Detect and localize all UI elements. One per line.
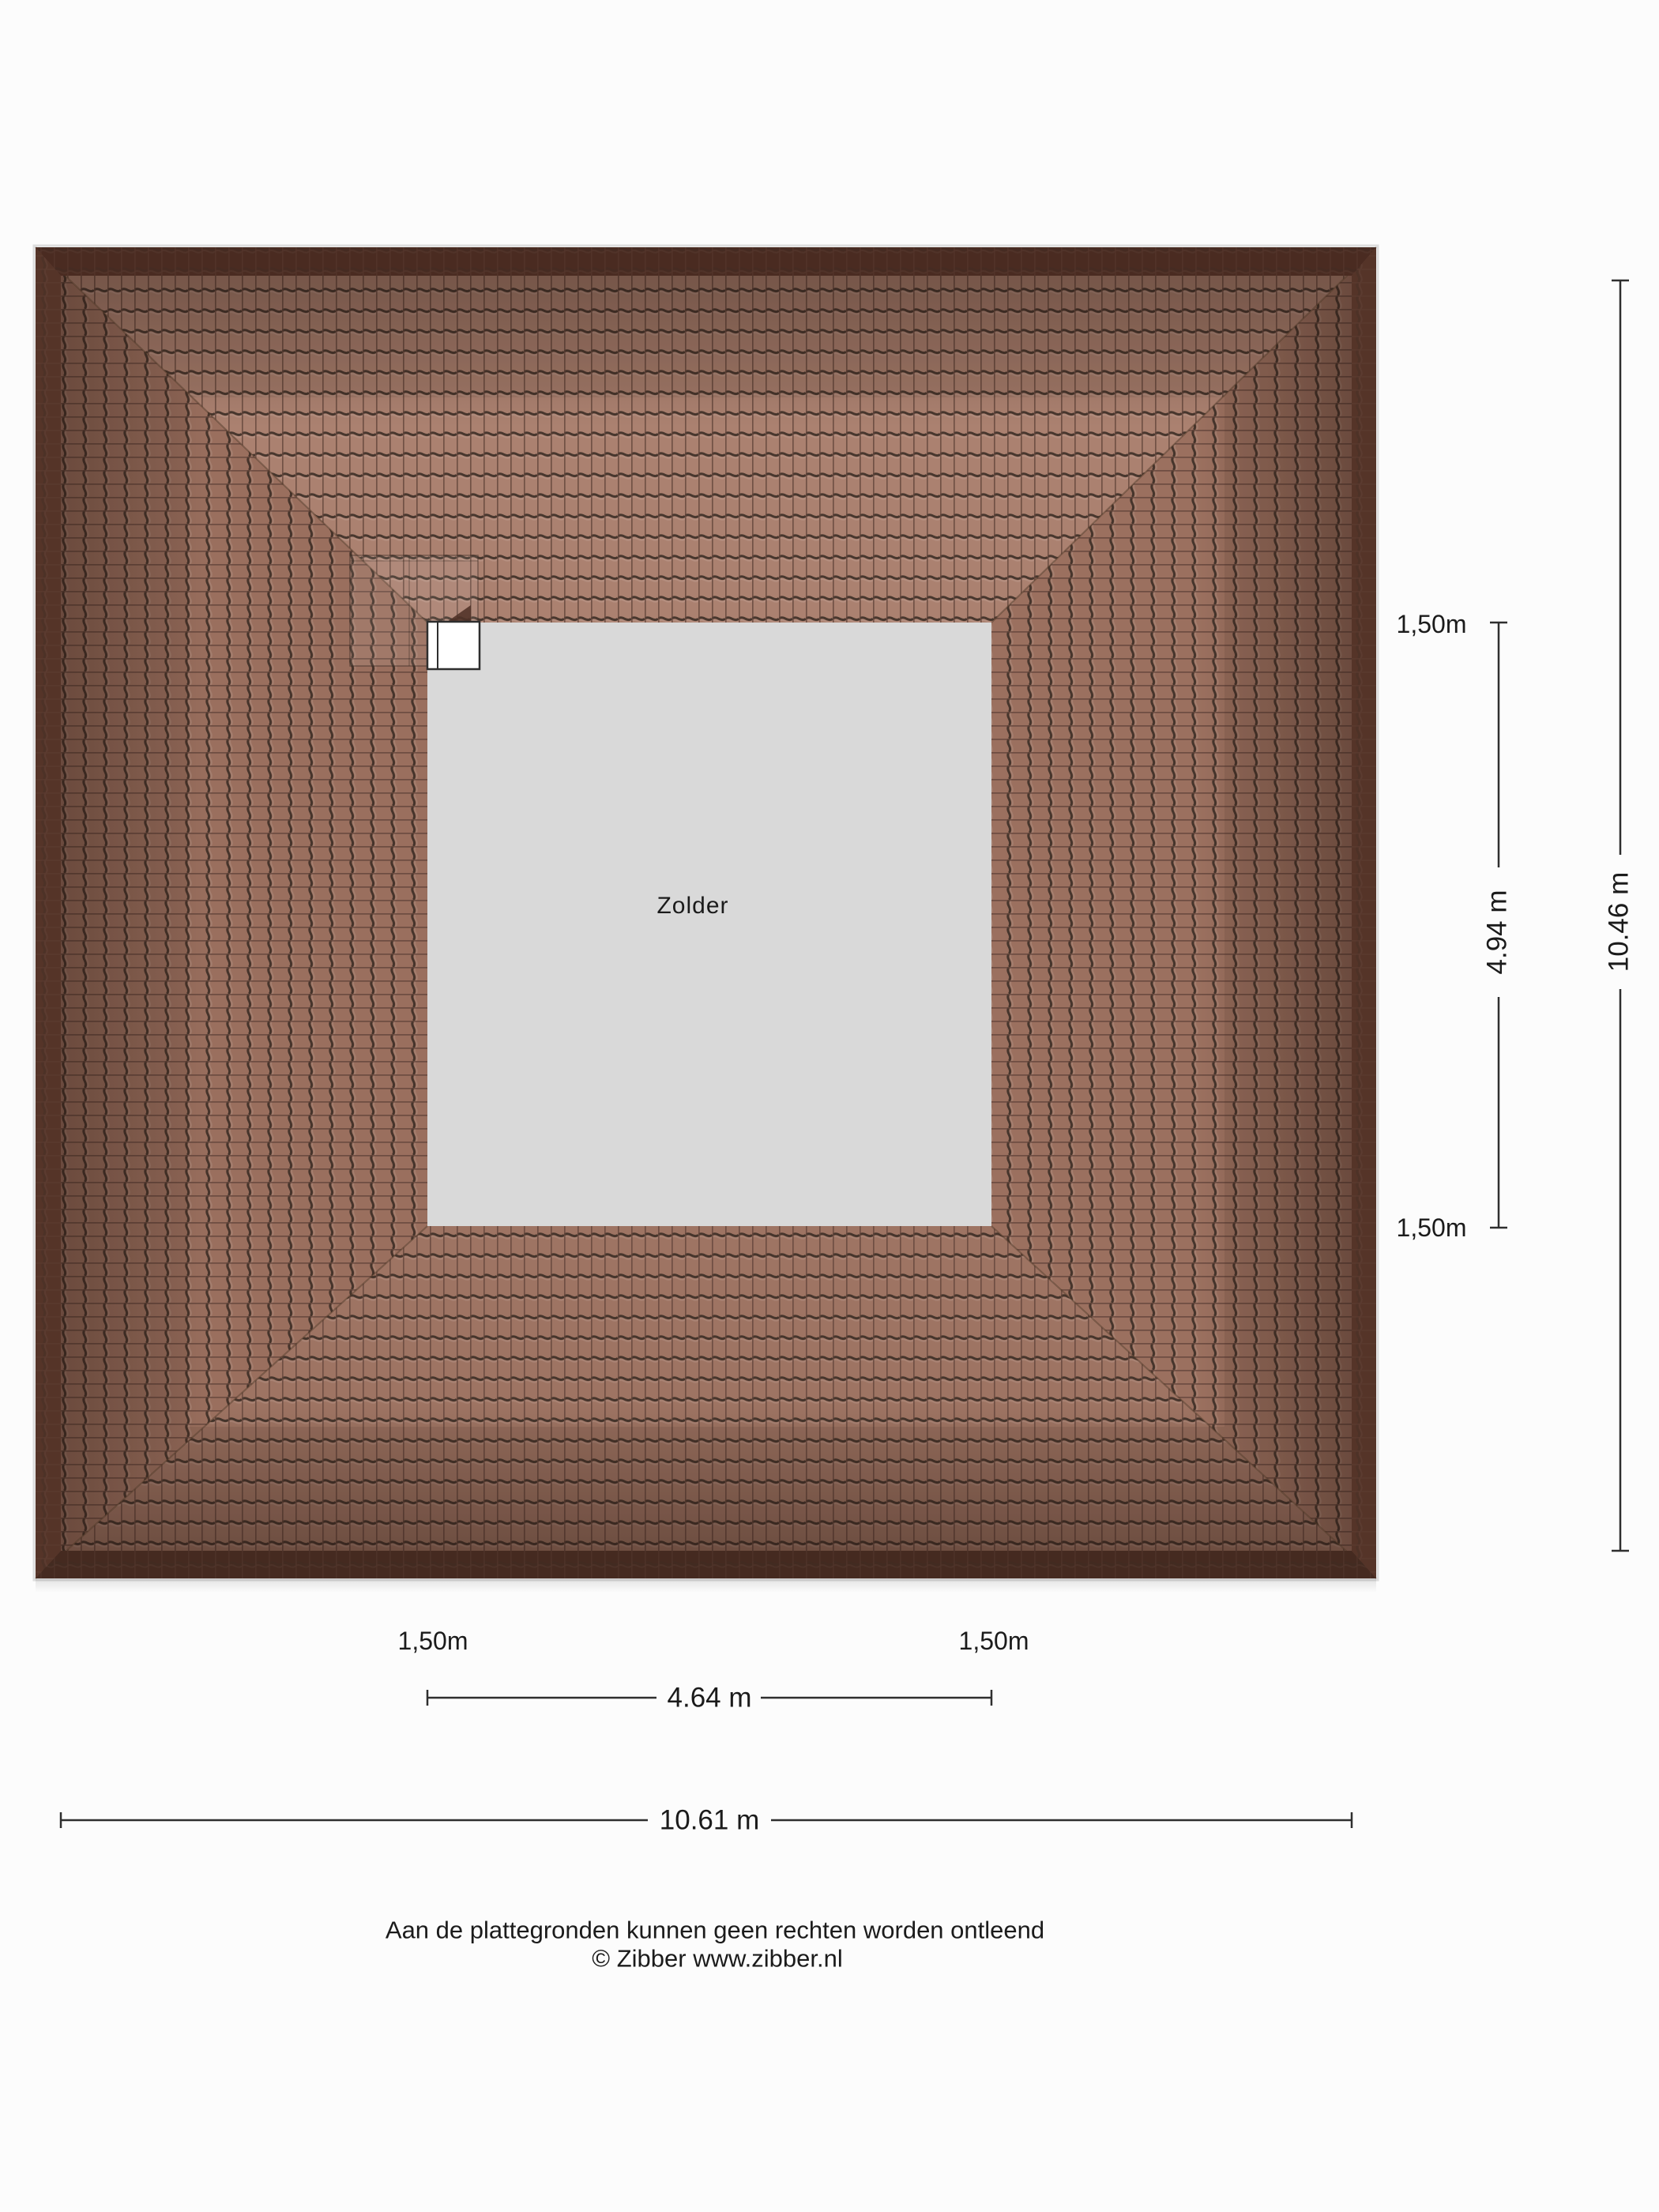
footer-copyright: © Zibber www.zibber.nl: [592, 1947, 842, 1971]
roof-plan-graphic: [0, 0, 1659, 2212]
dim-label-right-inner: 4.94 m: [1484, 890, 1511, 975]
roof-window: [427, 622, 480, 669]
height-marker-top-right: 1,50m: [1397, 611, 1467, 637]
dim-label-right-outer: 10.46 m: [1605, 872, 1633, 972]
room-label: Zolder: [656, 894, 728, 918]
attic-floor-area: [427, 623, 991, 1226]
height-marker-mid-right: 1,50m: [1397, 1215, 1467, 1240]
floorplan-page: Zolder 4.94 m 10.46 m 4.64 m 10.61 m 1,5…: [0, 0, 1659, 2212]
footer-disclaimer: Aan de plattegronden kunnen geen rechten…: [386, 1918, 1044, 1943]
roof-shadow: [36, 1578, 1376, 1593]
height-marker-bottom-left: 1,50m: [398, 1628, 468, 1653]
dim-label-bottom-inner: 4.64 m: [668, 1684, 752, 1712]
height-marker-bottom-right: 1,50m: [959, 1628, 1029, 1653]
dim-label-bottom-outer: 10.61 m: [660, 1807, 759, 1834]
